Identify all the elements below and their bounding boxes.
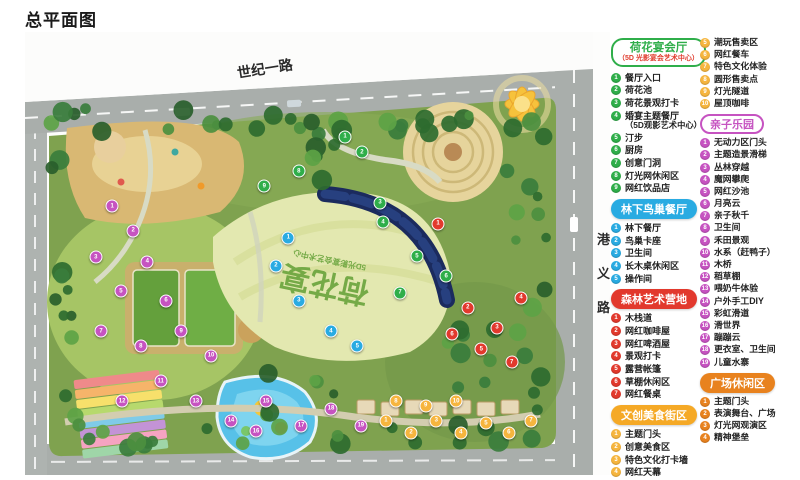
legend-item: 8灯光网休闲区 [611,171,679,181]
map-marker-blue-3: 3 [292,294,305,307]
map-marker-magenta-5: 5 [114,285,127,298]
legend-item-label: 灯光网休闲区 [625,171,679,181]
legend-item: 13喂奶牛体验 [700,284,758,294]
legend-item-number: 4 [611,351,621,361]
legend-item-label: 精神堡垒 [714,433,749,443]
legend-item-number: 5 [611,133,621,143]
legend-item-label: 卫生间 [714,223,740,233]
legend-item-number: 1 [611,429,621,439]
map-marker-green-6: 6 [440,270,453,283]
legend-item: 2鸟巢卡座 [611,236,661,246]
map-marker-yellow-5: 5 [479,417,492,430]
map-marker-magenta-4: 4 [141,255,154,268]
legend-item: 14户外手工DIY [700,297,764,307]
legend-item-number: 4 [611,467,621,477]
legend-section-header: 林下鸟巢餐厅 [611,199,697,219]
legend-item-label: 魔网攀爬 [714,175,749,185]
map-marker-yellow-1: 1 [379,414,392,427]
map-marker-magenta-15: 15 [260,395,273,408]
legend-item-label: 网红沙池 [714,187,749,197]
map-marker-magenta-1: 1 [106,200,119,213]
legend-item-number: 2 [700,409,710,419]
legend-item-label: 木栈道 [625,313,652,323]
map-marker-red-2: 2 [461,301,474,314]
legend-item-number: 6 [611,377,621,387]
legend-item: 2网红咖啡屋 [611,326,670,336]
legend-item-number: 1 [611,73,621,83]
legend-item-number: 10 [700,99,710,109]
map-marker-green-2: 2 [355,146,368,159]
map-marker-yellow-10: 10 [450,395,463,408]
map-marker-magenta-17: 17 [295,419,308,432]
legend-column-2: 5潮玩售卖区6网红餐车7特色文化体验8圆形售卖点9灯光隧道10屋顶咖啡亲子乐园1… [700,38,800,445]
legend-item-label: 网红饮品店 [625,183,670,193]
legend-section-title: 荷花宴会厅 [618,41,699,55]
legend-item: 19儿童水寨 [700,358,749,368]
legend-item: 4景观打卡 [611,351,661,361]
legend-item-label: 彩虹滑道 [714,309,749,319]
legend-item-number: 8 [700,223,710,233]
legend-item: 17蹦蹦云 [700,333,740,343]
legend-item-number: 9 [700,87,710,97]
legend-item: 4婚宴主题餐厅（5D观影艺术中心） [611,111,700,130]
legend-item-label: 喂奶牛体验 [714,284,758,294]
legend-item-label: 水系（赶鸭子） [714,248,776,258]
legend-item: 1木栈道 [611,313,652,323]
legend-item: 4网红天幕 [611,467,661,477]
legend-item-number: 14 [700,297,710,307]
legend-item-label: 月亮云 [714,199,740,209]
legend-item-number: 3 [611,339,621,349]
legend-item-label: 禾田景观 [714,236,749,246]
legend-item-label: 草棚休闲区 [625,377,670,387]
legend-item: 1主题门头 [700,397,749,407]
legend-item-label: 长木桌休闲区 [625,261,679,271]
legend-item: 5潮玩售卖区 [700,38,758,48]
map-marker-magenta-7: 7 [95,325,108,338]
legend-item-number: 17 [700,333,710,343]
legend-item-number: 2 [611,442,621,452]
map-marker-magenta-3: 3 [89,251,102,264]
map-marker-yellow-6: 6 [502,426,515,439]
legend-item-number: 4 [700,175,710,185]
legend-item-number: 7 [700,62,710,72]
legend-item: 15彩虹滑道 [700,309,749,319]
legend-item-number: 3 [611,248,621,258]
legend-item-label: 荷花景观打卡 [625,98,679,108]
legend-item-label: 特色文化打卡墙 [625,455,688,465]
legend-item-label: 主题造景滑梯 [714,150,767,160]
legend-item-label: 儿童水寨 [714,358,749,368]
map-marker-magenta-19: 19 [354,419,367,432]
legend-item-label: 创意美食区 [625,442,670,452]
legend-item-number: 7 [611,389,621,399]
legend-item-label: 户外手工DIY [714,297,764,307]
legend-item-label: 亲子秋千 [714,211,749,221]
map-marker-red-7: 7 [505,356,518,369]
legend-item: 8卫生间 [700,223,740,233]
legend-item-label: 汀步 [625,133,643,143]
map-marker-magenta-13: 13 [189,395,202,408]
legend-item: 3灯光网观演区 [700,421,767,431]
legend-item-label: 特色文化体验 [714,62,767,72]
map-marker-magenta-6: 6 [159,294,172,307]
map-marker-yellow-8: 8 [389,395,402,408]
map-marker-magenta-10: 10 [205,349,218,362]
legend-column-1: 荷花宴会厅（5D 光影宴会艺术中心）1餐厅入口2荷花池3荷花景观打卡4婚宴主题餐… [611,38,700,480]
map-marker-red-1: 1 [432,217,445,230]
map-marker-red-4: 4 [515,291,528,304]
legend-item-label: 主题门头 [714,397,749,407]
legend-item: 3特色文化打卡墙 [611,455,688,465]
legend-item-label: 网红餐车 [714,50,749,60]
legend-item: 1餐厅入口 [611,73,661,83]
legend-item: 7亲子秋千 [700,211,749,221]
legend-section-header: 森林艺术营地 [611,289,697,309]
legend-item: 8圆形售卖点 [700,75,758,85]
legend-item: 2创意美食区 [611,442,670,452]
legend-item-label: 圆形售卖点 [714,75,758,85]
legend-item-label: 网红咖啡屋 [625,326,670,336]
legend-item: 1无动力区门头 [700,138,767,148]
legend-item-label: 潮玩售卖区 [714,38,758,48]
legend-item: 4长木桌休闲区 [611,261,679,271]
legend-item: 7创意门洞 [611,158,661,168]
legend-section-header: 广场休闲区 [700,373,775,393]
legend-item-label: 厨房 [625,145,643,155]
legend-item-label: 荷花池 [625,85,652,95]
legend-item: 10水系（赶鸭子） [700,248,776,258]
legend-item: 6月亮云 [700,199,740,209]
map-marker-yellow-4: 4 [454,426,467,439]
map-marker-blue-5: 5 [351,340,364,353]
legend-item: 18更衣室、卫生间 [700,345,776,355]
legend-item-label: 滑世界 [714,321,740,331]
legend-item-number: 5 [611,364,621,374]
map-marker-magenta-14: 14 [224,414,237,427]
map-marker-magenta-16: 16 [250,425,263,438]
legend-section-header: 文创美食街区 [611,405,697,425]
legend-item: 5网红沙池 [700,187,749,197]
legend-item-number: 2 [611,236,621,246]
legend-item-label: 木桥 [714,260,732,270]
map-marker-blue-4: 4 [324,325,337,338]
legend-item: 6厨房 [611,145,643,155]
legend-item-label: 餐厅入口 [625,73,661,83]
map-marker-green-1: 1 [338,130,351,143]
site-plan-map: 荷花宴 5D光影宴会艺术中心 世纪一路 港义路 1234567891234512… [25,32,610,475]
legend-item-number: 1 [611,313,621,323]
legend-item: 9灯光隧道 [700,87,749,97]
legend-item-label: 稻草棚 [714,272,740,282]
map-marker-green-8: 8 [292,165,305,178]
legend-item: 3丛林穿越 [700,163,749,173]
map-marker-green-9: 9 [258,180,271,193]
legend-item-number: 12 [700,272,710,282]
map-marker-magenta-9: 9 [175,325,188,338]
legend-item-label: 景观打卡 [625,351,661,361]
legend-item-number: 16 [700,321,710,331]
legend-item-number: 19 [700,358,710,368]
legend-item-label: 林下餐厅 [625,223,661,233]
legend-item-number: 2 [611,326,621,336]
legend-item-label: 更衣室、卫生间 [714,345,776,355]
legend-item-number: 5 [700,187,710,197]
legend-item: 5露营帐篷 [611,364,661,374]
legend-item-label: 屋顶咖啡 [714,99,749,109]
legend-item: 6网红餐车 [700,50,749,60]
map-marker-magenta-18: 18 [324,402,337,415]
legend-item: 2主题造景滑梯 [700,150,767,160]
map-marker-magenta-8: 8 [134,340,147,353]
legend-item-number: 8 [611,171,621,181]
legend-item-label: 卫生间 [625,248,652,258]
legend-item: 9禾田景观 [700,236,749,246]
legend-item: 11木桥 [700,260,732,270]
legend-item-number: 6 [700,50,710,60]
legend-item-number: 11 [700,260,710,270]
legend-item: 10屋顶咖啡 [700,99,749,109]
legend-item-number: 4 [611,111,621,121]
legend-item-number: 18 [700,345,710,355]
legend-item: 12稻草棚 [700,272,740,282]
legend-item-number: 5 [611,274,621,284]
legend-item-number: 2 [700,150,710,160]
legend-item-number: 4 [700,433,710,443]
legend-item-number: 3 [700,421,710,431]
legend-item: 3网红啤酒屋 [611,339,670,349]
legend-item-label: 无动力区门头 [714,138,767,148]
legend-item-label: 灯光隧道 [714,87,749,97]
legend-item-number: 9 [700,236,710,246]
page-title: 总平面图 [25,6,97,31]
legend-item: 16滑世界 [700,321,740,331]
legend-item: 4魔网攀爬 [700,175,749,185]
legend-item-label: 蹦蹦云 [714,333,740,343]
legend-section-header: 荷花宴会厅（5D 光影宴会艺术中心） [611,38,706,67]
legend-item-number: 6 [700,199,710,209]
legend-item: 1林下餐厅 [611,223,661,233]
map-marker-blue-1: 1 [282,231,295,244]
legend-item-number: 1 [700,397,710,407]
legend-item-number: 3 [611,455,621,465]
legend-item: 5操作间 [611,274,652,284]
legend-item-label: 操作间 [625,274,652,284]
legend-section-header: 亲子乐园 [700,114,764,134]
map-marker-yellow-2: 2 [405,426,418,439]
legend-item-label: 网红天幕 [625,467,661,477]
map-marker-green-3: 3 [374,196,387,209]
legend-item-number: 13 [700,284,710,294]
legend-item-number: 6 [611,145,621,155]
legend-item-number: 3 [700,163,710,173]
legend-item: 6草棚休闲区 [611,377,670,387]
legend-item-number: 4 [611,261,621,271]
map-marker-magenta-11: 11 [154,375,167,388]
legend-item: 2荷花池 [611,85,652,95]
legend-item-label: 主题门头 [625,429,661,439]
legend-item: 3荷花景观打卡 [611,98,679,108]
legend-item: 9网红饮品店 [611,183,670,193]
legend-item-label: 创意门洞 [625,158,661,168]
legend-item-label: 露营帐篷 [625,364,661,374]
legend-item-number: 2 [611,85,621,95]
legend-item-label: 灯光网观演区 [714,421,767,431]
legend-item: 7网红餐桌 [611,389,661,399]
map-marker-green-5: 5 [410,250,423,263]
legend-item-label: 表演舞台、广场 [714,409,776,419]
legend-item-number: 8 [700,75,710,85]
map-marker-green-4: 4 [377,216,390,229]
legend-item-number: 7 [700,211,710,221]
map-marker-magenta-2: 2 [127,224,140,237]
legend-section-subtitle: （5D 光影宴会艺术中心） [618,55,699,63]
legend-item: 4精神堡垒 [700,433,749,443]
map-marker-yellow-7: 7 [525,414,538,427]
legend-item-sublabel: （5D观影艺术中心） [625,121,700,130]
legend-item-number: 1 [700,138,710,148]
map-marker-blue-2: 2 [269,259,282,272]
legend-item-number: 7 [611,158,621,168]
legend-item: 1主题门头 [611,429,661,439]
legend-item-number: 3 [611,98,621,108]
map-marker-red-6: 6 [446,328,459,341]
map-marker-red-3: 3 [491,321,504,334]
legend-item-number: 15 [700,309,710,319]
legend-item-label: 网红餐桌 [625,389,661,399]
legend-item-label: 婚宴主题餐厅（5D观影艺术中心） [625,111,700,130]
map-marker-yellow-3: 3 [430,414,443,427]
legend-item: 7特色文化体验 [700,62,767,72]
legend-item: 2表演舞台、广场 [700,409,776,419]
legend-item-label: 丛林穿越 [714,163,749,173]
legend-item-label: 网红啤酒屋 [625,339,670,349]
legend-item-number: 5 [700,38,710,48]
map-marker-yellow-9: 9 [419,399,432,412]
legend-item-number: 10 [700,248,710,258]
legend-item-number: 1 [611,223,621,233]
legend-item: 5汀步 [611,133,643,143]
map-marker-magenta-12: 12 [116,395,129,408]
map-marker-red-5: 5 [475,343,488,356]
legend-item-label: 鸟巢卡座 [625,236,661,246]
legend-item-number: 9 [611,183,621,193]
legend-item: 3卫生间 [611,248,652,258]
map-marker-green-7: 7 [393,286,406,299]
map-markers-layer: 1234567891234512345671234567891011121314… [25,32,610,475]
